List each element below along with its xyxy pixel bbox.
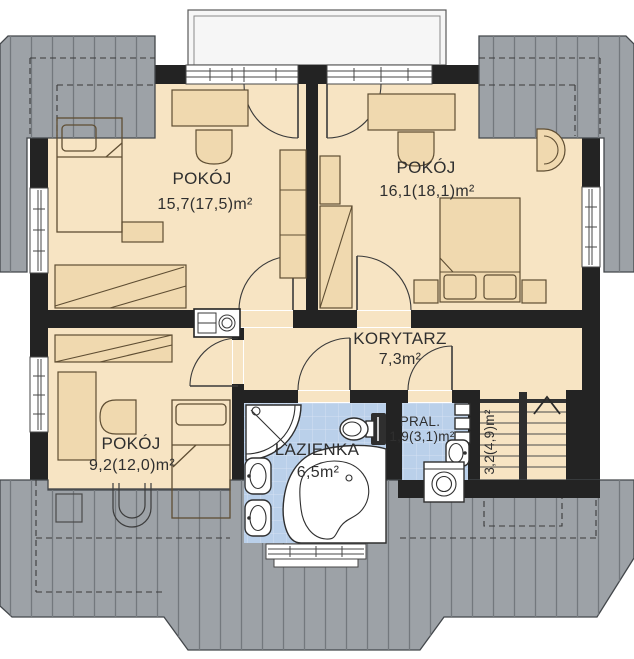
window-left-1 [30, 188, 48, 273]
room3-area: 9,2(12,0)m² [89, 457, 175, 474]
bathroom-area: 6,5m² [297, 464, 340, 481]
chair-icon [100, 400, 136, 434]
corridor-area: 7,3m² [379, 351, 422, 368]
bathroom [244, 403, 386, 567]
stairs-area: 3,2(4,9)m² [482, 409, 497, 474]
washbasin-icon [245, 500, 271, 536]
room2-name: POKÓJ [396, 158, 455, 177]
wall-shelves-icon [455, 404, 470, 443]
washing-machine-icon [424, 462, 464, 502]
cabinet-icon [122, 222, 163, 242]
floor-plan: POKÓJ 15,7(17,5)m² POKÓJ 16,1(18,1)m² KO… [0, 0, 634, 659]
desk-icon [172, 90, 248, 126]
bathroom-window [266, 544, 366, 567]
room2-area: 16,1(18,1)m² [379, 183, 475, 200]
wardrobe-icon [280, 150, 306, 278]
bathroom-name: ŁAZIENKA [275, 440, 360, 459]
desk-icon [58, 372, 96, 460]
laundry-name: PRAL. [400, 414, 441, 429]
balcony [188, 10, 446, 65]
nightstand-icon [414, 280, 438, 303]
balcony-glazing-right [327, 65, 432, 84]
room3-name: POKÓJ [101, 434, 160, 453]
balcony-glazing-left [186, 65, 298, 84]
nightstand-icon [522, 280, 546, 303]
floor-plan-svg: POKÓJ 15,7(17,5)m² POKÓJ 16,1(18,1)m² KO… [0, 0, 634, 659]
water-heater-icon [194, 309, 240, 337]
window-left-2 [30, 357, 48, 432]
stair-stringer [519, 392, 527, 480]
double-bed-icon [440, 198, 520, 302]
partition-room1-room2 [306, 84, 318, 310]
room1-name: POKÓJ [172, 169, 231, 188]
cabinet-icon [320, 156, 340, 204]
room1-area: 15,7(17,5)m² [157, 196, 253, 213]
window-right [582, 187, 600, 267]
chair-icon [196, 130, 232, 164]
corridor-name: KORYTARZ [353, 329, 446, 348]
washbasin-icon [245, 458, 271, 494]
desk-icon [368, 94, 455, 130]
laundry-area: 1,9(3,1)m² [389, 429, 454, 444]
